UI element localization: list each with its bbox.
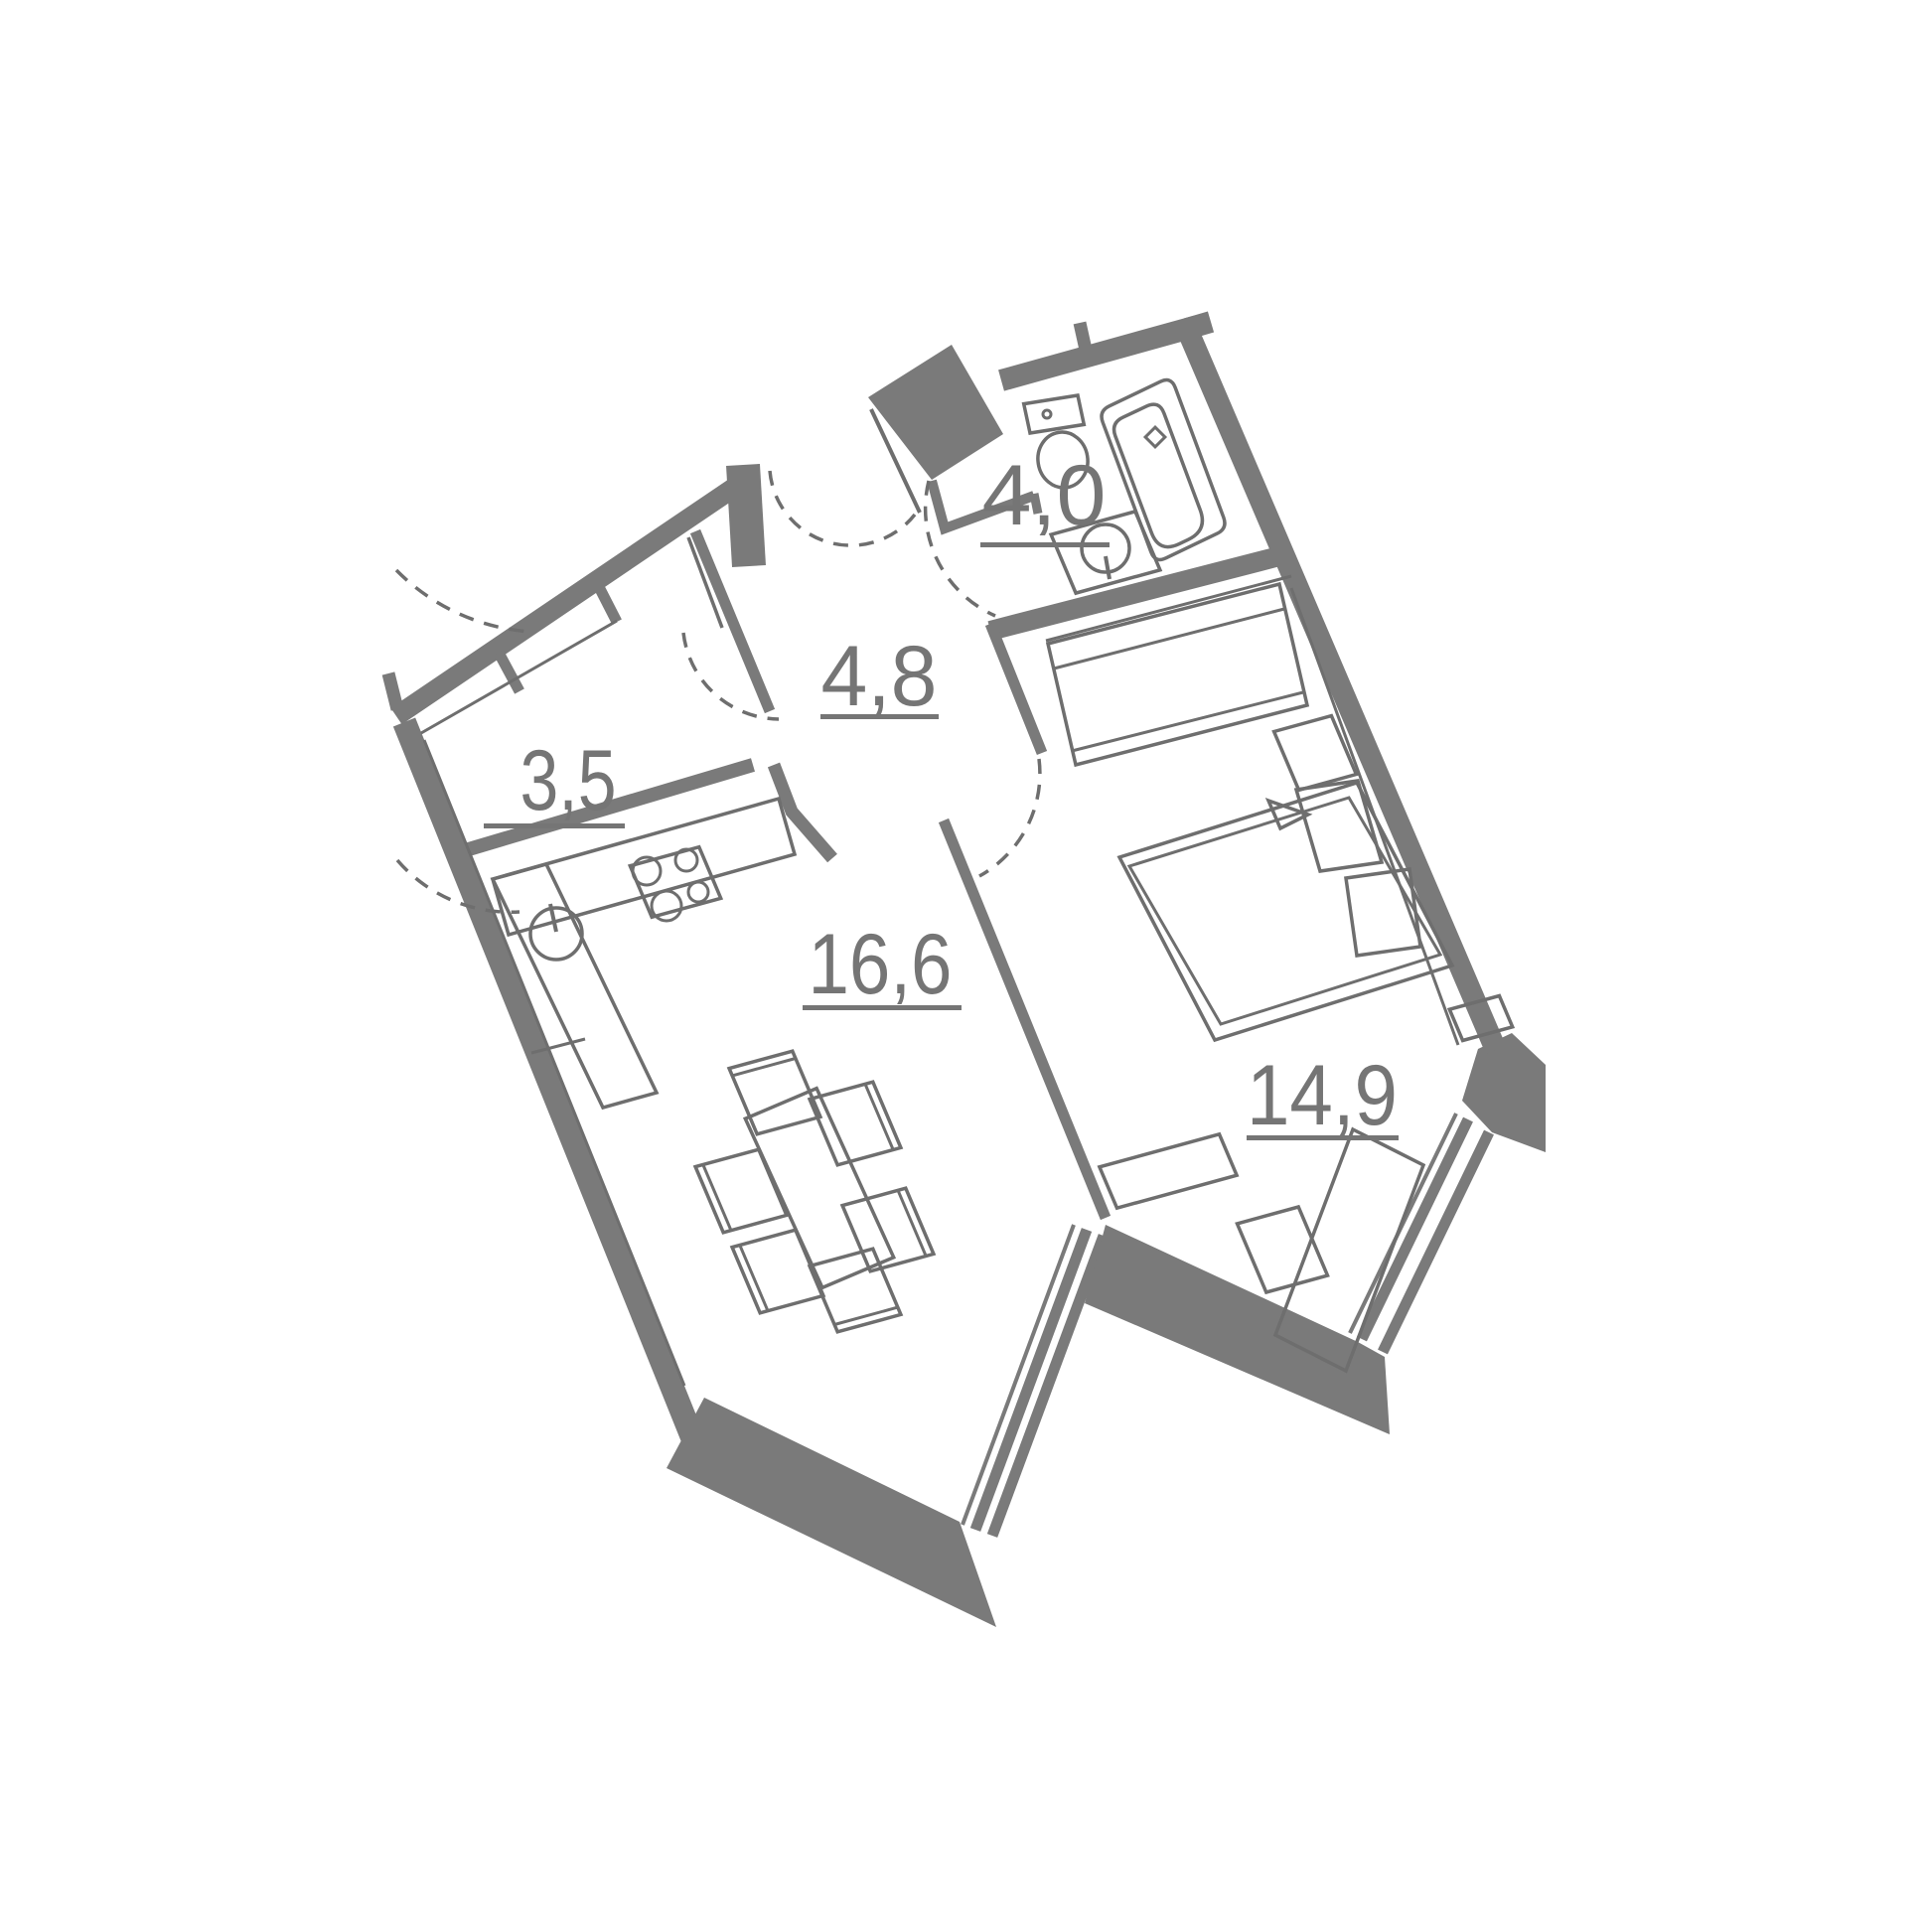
svg-text:4,0: 4,0 (982, 448, 1107, 543)
svg-text:16,6: 16,6 (809, 917, 953, 1012)
svg-text:3,5: 3,5 (520, 733, 617, 828)
svg-text:14,9: 14,9 (1247, 1048, 1398, 1143)
svg-text:4,8: 4,8 (821, 629, 938, 724)
